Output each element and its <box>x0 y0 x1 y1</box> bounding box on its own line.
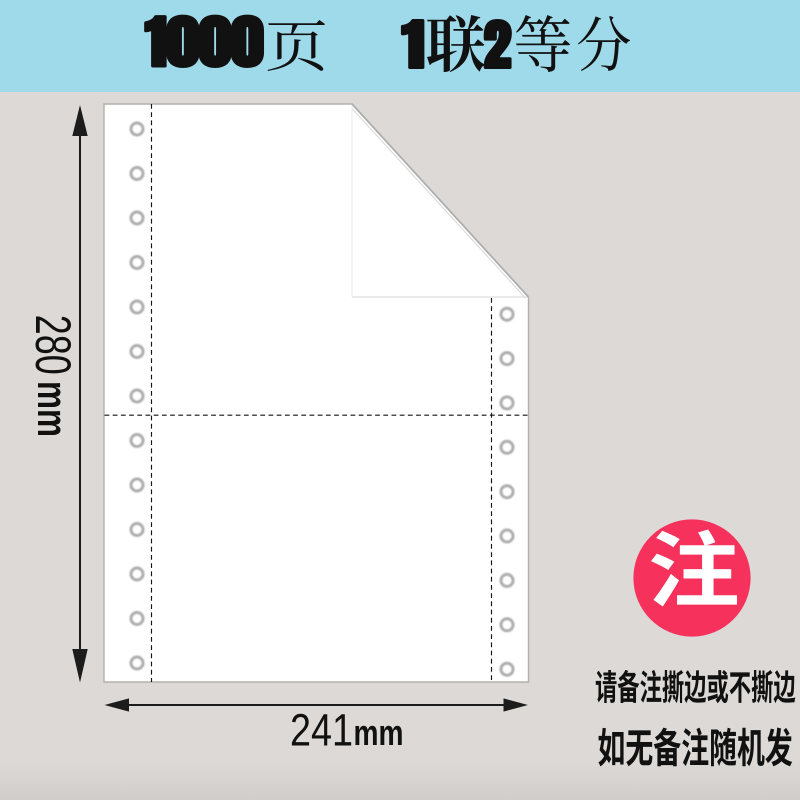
svg-text:mm: mm <box>29 381 76 437</box>
svg-text:mm: mm <box>354 712 404 753</box>
svg-text:241: 241 <box>290 704 353 755</box>
svg-text:280: 280 <box>25 315 82 375</box>
